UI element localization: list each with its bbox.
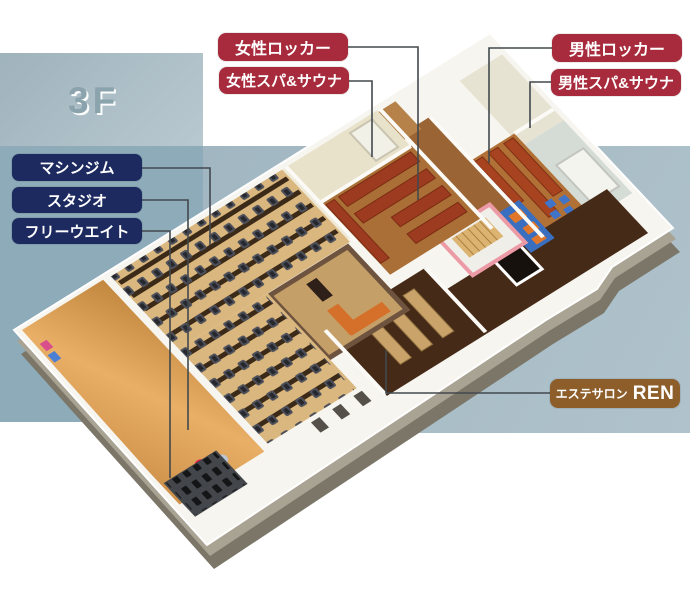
- label-ren-text: REN: [633, 383, 675, 405]
- leader-men-locker: [489, 48, 552, 163]
- label-men-locker: 男性ロッカー: [552, 34, 682, 62]
- label-men-spa-sauna: 男性スパ&サウナ: [551, 69, 681, 96]
- leader-free-weight: [142, 231, 170, 478]
- leader-women-locker: [348, 47, 418, 200]
- label-women-spa-sauna: 女性スパ&サウナ: [219, 67, 349, 94]
- label-esthe-salon-ren: エステサロン REN: [550, 379, 680, 408]
- leader-men-spa: [530, 82, 551, 128]
- floor-indicator: 3F: [68, 80, 119, 122]
- floor-guide-3f: 3F 女性ロッカー 女性スパ&サウナ 男性ロッカー 男性スパ&サウナ マシンジム…: [0, 0, 690, 595]
- label-women-locker: 女性ロッカー: [218, 33, 348, 61]
- leader-machine-gym: [142, 168, 210, 245]
- label-studio: スタジオ: [12, 187, 142, 213]
- label-free-weight: フリーウエイト: [12, 218, 142, 244]
- leader-women-spa: [348, 81, 372, 157]
- label-machine-gym: マシンジム: [12, 154, 142, 181]
- label-esthe-salon-text: エステサロン: [556, 385, 628, 402]
- leader-studio: [142, 200, 188, 430]
- leader-esthe-salon: [386, 350, 550, 393]
